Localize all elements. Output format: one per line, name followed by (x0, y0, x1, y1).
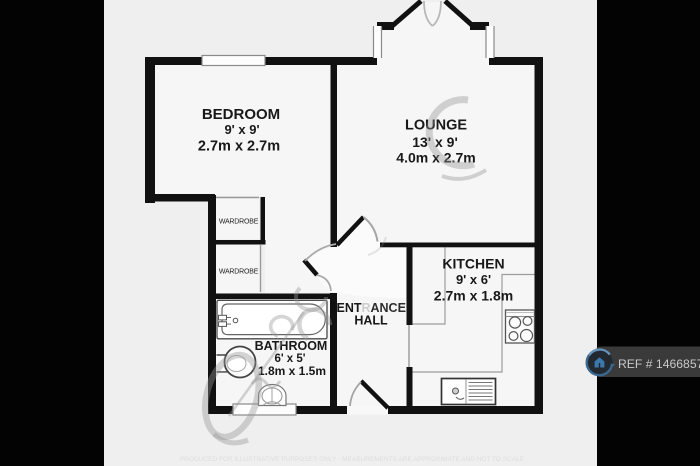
svg-text:2.7m x 1.8m: 2.7m x 1.8m (434, 288, 513, 304)
svg-text:9' x 9': 9' x 9' (224, 122, 259, 137)
svg-text:KITCHEN: KITCHEN (442, 256, 504, 272)
svg-text:9' x 6': 9' x 6' (456, 272, 491, 287)
svg-text:BATHROOM: BATHROOM (255, 339, 328, 353)
svg-text:1.8m x 1.5m: 1.8m x 1.5m (258, 364, 326, 378)
svg-text:LOUNGE: LOUNGE (405, 118, 467, 134)
svg-text:2.7m x 2.7m: 2.7m x 2.7m (198, 139, 280, 155)
svg-text:REF # 1466857: REF # 1466857 (618, 357, 700, 371)
svg-text:HALL: HALL (354, 314, 388, 328)
svg-text:PRODUCED FOR ILLUSTRATIVE PURP: PRODUCED FOR ILLUSTRATIVE PURPOSES ONLY … (180, 456, 525, 463)
svg-text:BEDROOM: BEDROOM (202, 106, 280, 123)
svg-text:WARDROBE: WARDROBE (219, 269, 259, 276)
svg-text:WARDROBE: WARDROBE (219, 219, 259, 226)
